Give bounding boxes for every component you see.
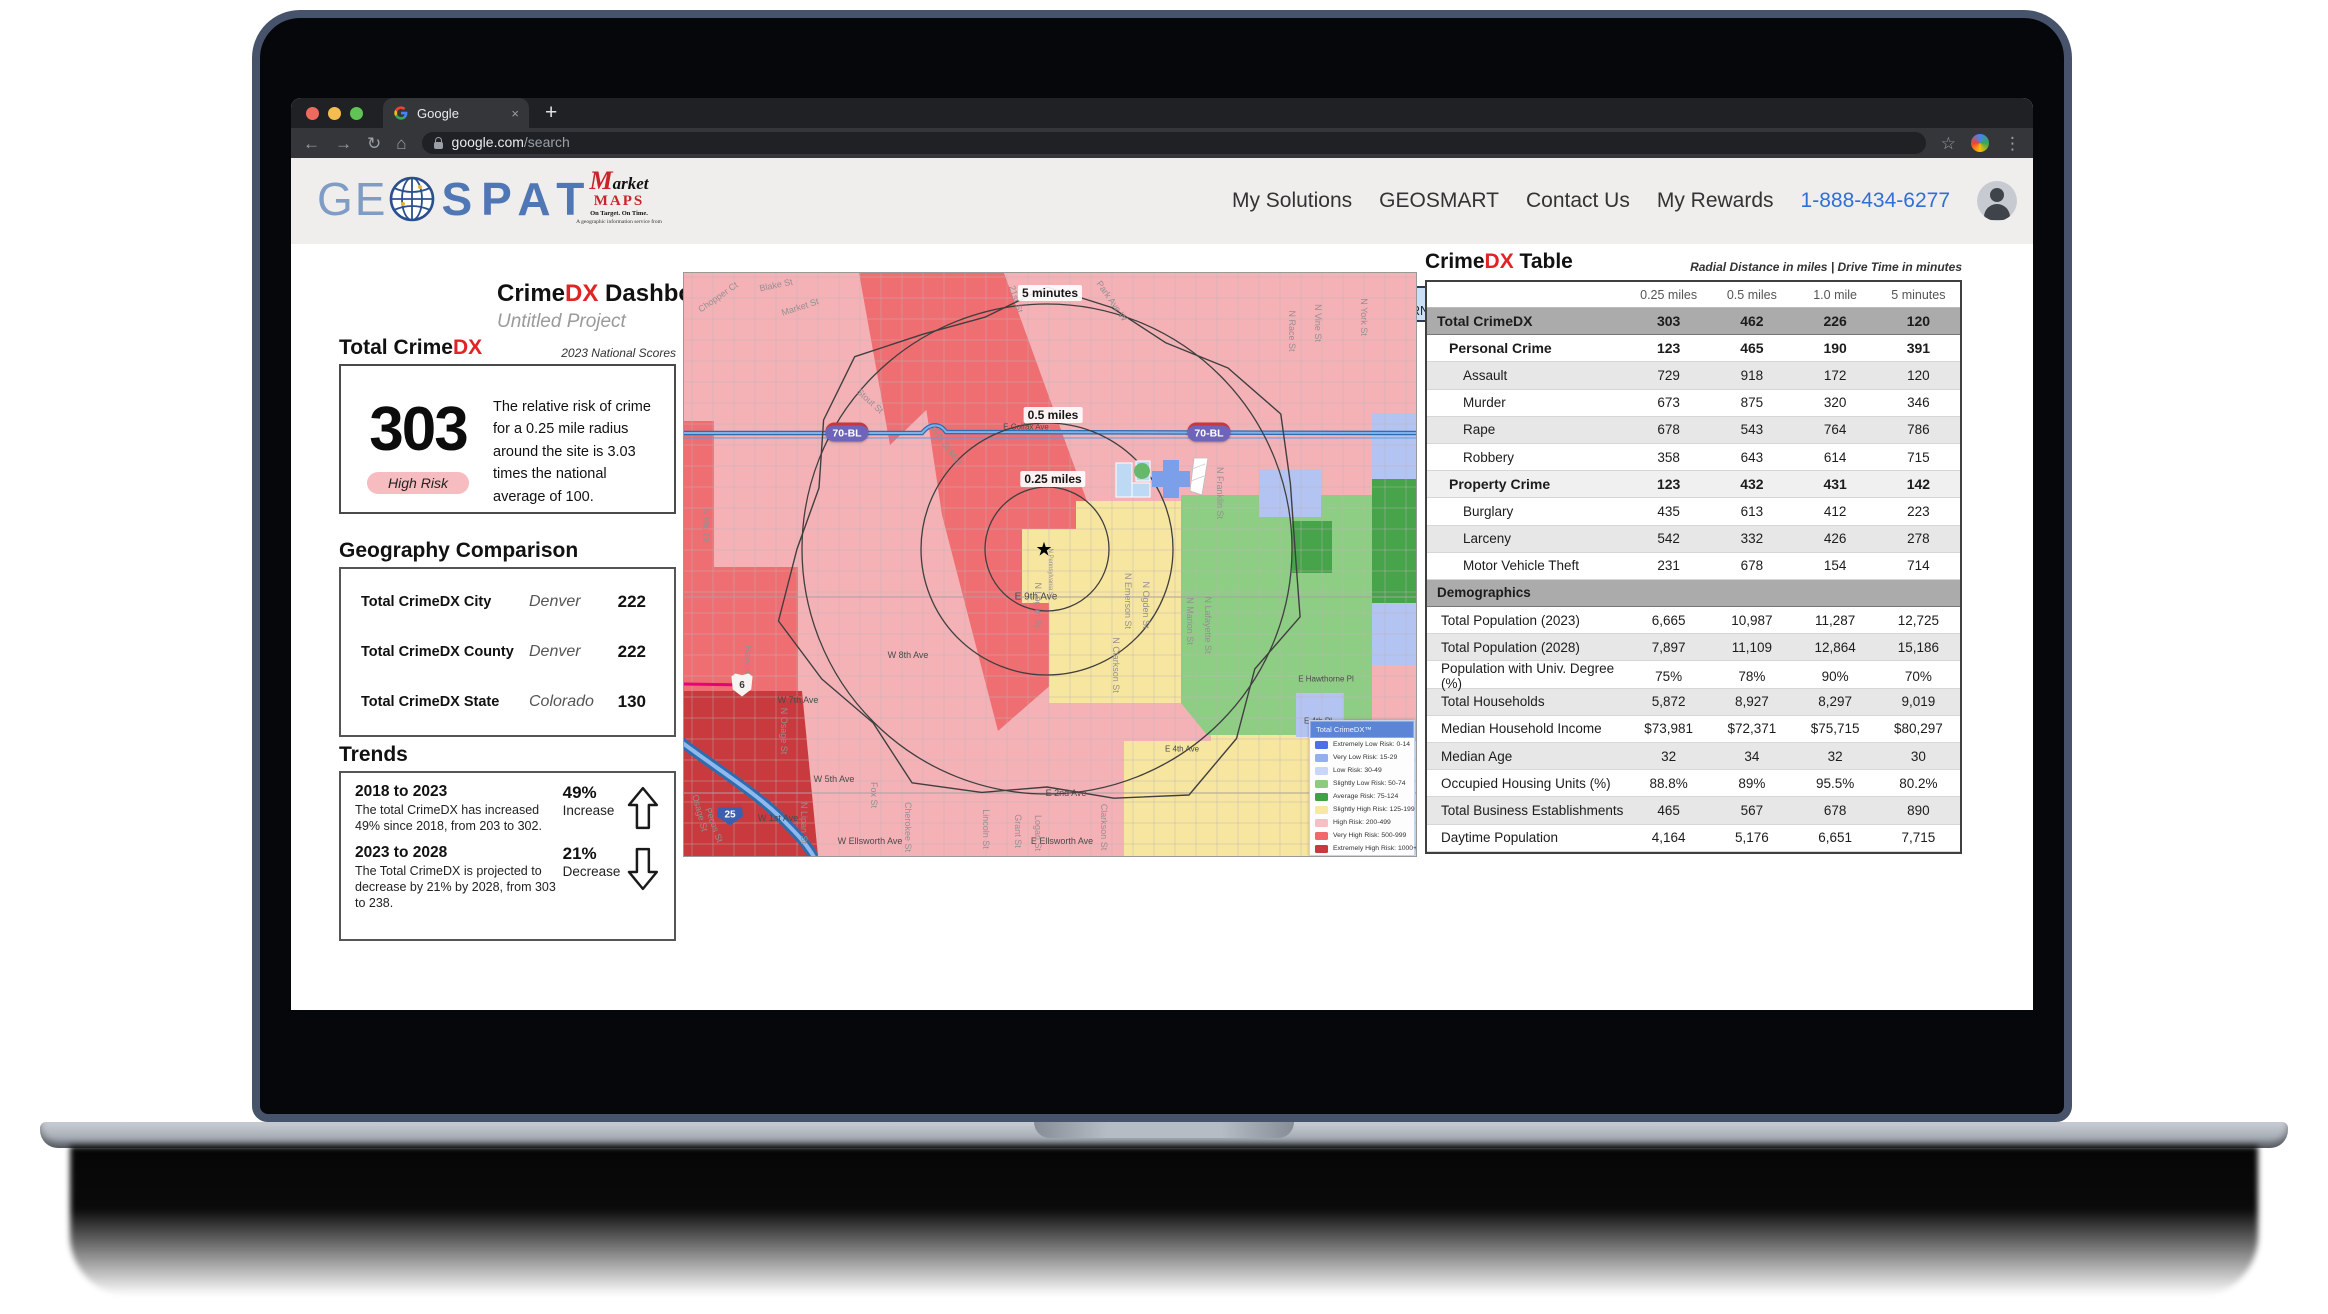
row-value: 432 (1710, 476, 1793, 492)
row-label: Murder (1427, 395, 1627, 410)
legend-item: Very High Risk: 500-999 (1310, 829, 1414, 842)
legend-item: Slightly Low Risk: 50-74 (1310, 777, 1414, 790)
row-value: 12,725 (1877, 613, 1960, 628)
geography-box: Total CrimeDX City Denver 222 Total Crim… (339, 567, 676, 737)
row-value: 123 (1627, 476, 1710, 492)
reload-icon[interactable]: ↻ (367, 135, 381, 152)
home-icon[interactable]: ⌂ (396, 135, 406, 152)
window-controls (306, 107, 363, 120)
google-favicon (393, 105, 409, 121)
row-value: 465 (1627, 803, 1710, 818)
score-panel-note: 2023 National Scores (561, 346, 676, 360)
row-label: Rape (1427, 422, 1627, 437)
new-tab-button[interactable]: + (545, 101, 557, 125)
close-window-button[interactable] (306, 107, 319, 120)
row-value: 358 (1627, 450, 1710, 465)
row-value: 465 (1710, 340, 1793, 356)
score-panel-heading: Total CrimeDX (339, 336, 482, 360)
laptop-base-notch (1034, 1122, 1294, 1138)
total-crimedx-panel: Total CrimeDX 2023 National Scores 303 H… (339, 336, 676, 514)
row-value: 32 (1627, 749, 1710, 764)
mm-subline: A geographic information service from (559, 219, 679, 225)
legend-label: Extremely High Risk: 1000+ (1333, 845, 1417, 852)
mm-maps: MAPS (559, 194, 679, 210)
mm-m: M (589, 166, 612, 195)
table-row: Demographics (1427, 580, 1960, 607)
row-value: 567 (1710, 803, 1793, 818)
table-row: Total CrimeDX303462226120 (1427, 308, 1960, 335)
row-value: 435 (1627, 504, 1710, 519)
row-value: 78% (1710, 669, 1793, 684)
row-value: 332 (1710, 531, 1793, 546)
row-value: 786 (1877, 422, 1960, 437)
geo-row-city: Total CrimeDX City Denver 222 (341, 592, 674, 612)
legend-item: High Risk: 200-499 (1310, 816, 1414, 829)
table-row: Rape678543764786 (1427, 417, 1960, 444)
row-label: Total Population (2028) (1427, 640, 1627, 655)
row-value: 11,109 (1710, 640, 1793, 655)
col-10-mile: 1.0 mile (1794, 288, 1877, 302)
legend-label: Very Low Risk: 15-29 (1333, 754, 1397, 761)
url-host: google.com (452, 134, 524, 150)
row-value: 412 (1794, 504, 1877, 519)
row-value: 715 (1877, 450, 1960, 465)
table-heading: CrimeDX Table (1425, 250, 1573, 274)
table-row: Occupied Housing Units (%)88.8%89%95.5%8… (1427, 770, 1960, 797)
nav-item-my-solutions[interactable]: My Solutions (1232, 189, 1352, 213)
row-value: 426 (1794, 531, 1877, 546)
row-value: 30 (1877, 749, 1960, 764)
table-row: Total Population (2023)6,66510,98711,287… (1427, 607, 1960, 634)
row-value: 223 (1877, 504, 1960, 519)
trend-item-2023-2028: 2023 to 2028 The Total CrimeDX is projec… (355, 844, 660, 912)
table-row: Total Population (2028)7,89711,10912,864… (1427, 634, 1960, 661)
browser-toolbar: ← → ↻ ⌂ google.com/search ☆ ⋮ (291, 128, 2033, 158)
row-value: 4,164 (1627, 830, 1710, 845)
site-header: GE SPAT Market MAPS On Target. On Time. … (291, 158, 2033, 244)
legend-swatch (1315, 819, 1328, 827)
page-content: GE SPAT Market MAPS On Target. On Time. … (291, 158, 2033, 1010)
row-value: 231 (1627, 558, 1710, 573)
legend-item: Extremely Low Risk: 0-14 (1310, 738, 1414, 751)
legend-swatch (1315, 780, 1328, 788)
legend-label: Slightly High Risk: 125-199 (1333, 806, 1415, 813)
legend-label: Very High Risk: 500-999 (1333, 832, 1406, 839)
table-row: Assault729918172120 (1427, 362, 1960, 389)
back-icon[interactable]: ← (303, 135, 320, 152)
row-value: 764 (1794, 422, 1877, 437)
col-5-minutes: 5 minutes (1877, 288, 1960, 302)
row-value: 11,287 (1794, 613, 1877, 628)
legend-rows: Extremely Low Risk: 0-14Very Low Risk: 1… (1310, 738, 1414, 855)
mm-arket: arket (613, 174, 649, 193)
row-label: Demographics (1427, 585, 1627, 600)
geospat-logo[interactable]: GE SPAT (317, 172, 593, 226)
table-row: Median Age32343230 (1427, 743, 1960, 770)
row-value: 90% (1794, 669, 1877, 684)
row-value: 75% (1627, 669, 1710, 684)
row-value: $75,715 (1794, 721, 1877, 736)
row-value: $72,371 (1710, 721, 1793, 736)
minimize-window-button[interactable] (328, 107, 341, 120)
row-value: 542 (1627, 531, 1710, 546)
row-label: Daytime Population (1427, 830, 1627, 845)
table-row: Personal Crime123465190391 (1427, 335, 1960, 362)
trends-box: 2018 to 2023 The total CrimeDX has incre… (339, 771, 676, 941)
row-value: 462 (1710, 313, 1793, 329)
row-value: 391 (1877, 340, 1960, 356)
row-value: 678 (1710, 558, 1793, 573)
row-value: 614 (1794, 450, 1877, 465)
browser-tab-bar: Google × + (291, 98, 2033, 128)
legend-swatch (1315, 793, 1328, 801)
legend-item: Slightly High Risk: 125-199 (1310, 803, 1414, 816)
row-value: 5,176 (1710, 830, 1793, 845)
col-05-miles: 0.5 miles (1710, 288, 1793, 302)
row-value: 95.5% (1794, 776, 1877, 791)
arrow-up-icon (626, 785, 660, 831)
row-value: $73,981 (1627, 721, 1710, 736)
row-value: 875 (1710, 395, 1793, 410)
geo-row-state: Total CrimeDX State Colorado 130 (341, 692, 674, 712)
table-row: Median Household Income$73,981$72,371$75… (1427, 716, 1960, 743)
legend-item: Low Risk: 30-49 (1310, 764, 1414, 777)
row-value: 678 (1627, 422, 1710, 437)
row-label: Occupied Housing Units (%) (1427, 776, 1627, 791)
row-value: $80,297 (1877, 721, 1960, 736)
row-value: 543 (1710, 422, 1793, 437)
logo-ge: GE (317, 172, 387, 226)
row-label: Personal Crime (1427, 340, 1627, 356)
crimedx-table-body: Total CrimeDX303462226120Personal Crime1… (1427, 308, 1960, 852)
table-row: Robbery358643614715 (1427, 444, 1960, 471)
row-value: 678 (1794, 803, 1877, 818)
legend-swatch (1315, 832, 1328, 840)
table-row: Total Households5,8728,9278,2979,019 (1427, 689, 1960, 716)
row-value: 431 (1794, 476, 1877, 492)
table-row: Property Crime123432431142 (1427, 471, 1960, 498)
score-description: The relative risk of crime for a 0.25 mi… (493, 396, 663, 508)
maximize-window-button[interactable] (350, 107, 363, 120)
crimedx-table-panel: CrimeDX Table Radial Distance in miles |… (1425, 250, 1962, 854)
browser-window: Google × + ← → ↻ ⌂ google.com/search ☆ ⋮… (291, 98, 2033, 1010)
user-avatar[interactable] (1977, 181, 2017, 221)
row-value: 32 (1794, 749, 1877, 764)
legend-label: Average Risk: 75-124 (1333, 793, 1398, 800)
risk-badge: High Risk (367, 472, 469, 494)
row-label: Burglary (1427, 504, 1627, 519)
forward-icon[interactable]: → (335, 135, 352, 152)
row-value: 303 (1627, 313, 1710, 329)
row-value: 154 (1794, 558, 1877, 573)
row-value: 7,715 (1877, 830, 1960, 845)
url-path: /search (524, 134, 570, 150)
browser-tab[interactable]: Google × (383, 98, 529, 128)
row-value: 10,987 (1710, 613, 1793, 628)
site-marker-star-icon: ★ (1035, 539, 1052, 562)
profile-avatar-icon[interactable] (1971, 134, 1989, 152)
arrow-down-icon (626, 846, 660, 892)
row-value: 142 (1877, 476, 1960, 492)
legend-item: Average Risk: 75-124 (1310, 790, 1414, 803)
row-label: Property Crime (1427, 476, 1627, 492)
legend-label: Low Risk: 30-49 (1333, 767, 1382, 774)
nav-item-my-rewards[interactable]: My Rewards (1657, 189, 1774, 213)
row-value: 80.2% (1877, 776, 1960, 791)
legend-swatch (1315, 767, 1328, 775)
map-legend: Total CrimeDX™ Extremely Low Risk: 0-14V… (1309, 720, 1415, 856)
row-value: 120 (1877, 313, 1960, 329)
legend-item: Extremely High Risk: 1000+ (1310, 842, 1414, 855)
row-value: 714 (1877, 558, 1960, 573)
trends-heading: Trends (339, 743, 676, 767)
row-value: 613 (1710, 504, 1793, 519)
row-value: 9,019 (1877, 694, 1960, 709)
row-value: 5,872 (1627, 694, 1710, 709)
row-value: 8,927 (1710, 694, 1793, 709)
map-canvas (684, 273, 1416, 856)
laptop-shadow (70, 1146, 2258, 1296)
legend-label: Slightly Low Risk: 50-74 (1333, 780, 1406, 787)
geography-comparison-panel: Geography Comparison Total CrimeDX City … (339, 539, 676, 737)
row-value: 6,651 (1794, 830, 1877, 845)
geography-heading: Geography Comparison (339, 539, 676, 563)
legend-item: Very Low Risk: 15-29 (1310, 751, 1414, 764)
legend-swatch (1315, 845, 1328, 853)
globe-icon (387, 174, 437, 224)
row-value: 15,186 (1877, 640, 1960, 655)
row-label: Median Age (1427, 749, 1627, 764)
row-value: 673 (1627, 395, 1710, 410)
legend-swatch (1315, 754, 1328, 762)
row-label: Total Business Establishments (1427, 803, 1627, 818)
row-value: 172 (1794, 368, 1877, 383)
row-value: 34 (1710, 749, 1793, 764)
row-label: Assault (1427, 368, 1627, 383)
table-row: Daytime Population4,1645,1766,6517,715 (1427, 825, 1960, 852)
geo-row-county: Total CrimeDX County Denver 222 (341, 642, 674, 662)
row-value: 226 (1794, 313, 1877, 329)
row-value: 12,864 (1794, 640, 1877, 655)
main-nav: My Solutions GEOSMART Contact Us My Rewa… (1232, 158, 2017, 244)
trends-panel: Trends 2018 to 2023 The total CrimeDX ha… (339, 743, 676, 941)
legend-swatch (1315, 741, 1328, 749)
crime-map[interactable]: Chopper CtBlake StMarket StStout St16th … (683, 272, 1417, 857)
table-row: Population with Univ. Degree (%)75%78%90… (1427, 661, 1960, 688)
table-note: Radial Distance in miles | Drive Time in… (1690, 260, 1962, 274)
table-row: Murder673875320346 (1427, 390, 1960, 417)
row-value: 123 (1627, 340, 1710, 356)
row-value: 190 (1794, 340, 1877, 356)
row-value: 89% (1710, 776, 1793, 791)
legend-label: Extremely Low Risk: 0-14 (1333, 741, 1410, 748)
nav-item-geosmart[interactable]: GEOSMART (1379, 189, 1499, 213)
score-box: 303 High Risk The relative risk of crime… (339, 364, 676, 514)
marketmaps-logo: Market MAPS On Target. On Time. A geogra… (559, 168, 679, 225)
row-value: 70% (1877, 669, 1960, 684)
table-row: Larceny542332426278 (1427, 526, 1960, 553)
row-label: Total CrimeDX (1427, 313, 1627, 329)
tab-close-icon[interactable]: × (511, 106, 519, 121)
legend-label: High Risk: 200-499 (1333, 819, 1391, 826)
row-value: 88.8% (1627, 776, 1710, 791)
row-value: 8,297 (1794, 694, 1877, 709)
row-value: 6,665 (1627, 613, 1710, 628)
legend-title: Total CrimeDX™ (1310, 721, 1414, 738)
row-label: Robbery (1427, 450, 1627, 465)
tab-title: Google (417, 106, 503, 121)
row-value: 7,897 (1627, 640, 1710, 655)
row-label: Population with Univ. Degree (%) (1427, 661, 1627, 691)
row-value: 729 (1627, 368, 1710, 383)
row-label: Larceny (1427, 531, 1627, 546)
row-value: 346 (1877, 395, 1960, 410)
bookmark-star-icon[interactable]: ☆ (1941, 135, 1956, 152)
row-label: Motor Vehicle Theft (1427, 558, 1627, 573)
crimedx-table: 0.25 miles 0.5 miles 1.0 mile 5 minutes … (1425, 280, 1962, 854)
lock-icon (434, 142, 443, 149)
mm-tagline: On Target. On Time. (559, 210, 679, 217)
table-row: Motor Vehicle Theft231678154714 (1427, 553, 1960, 580)
address-bar[interactable]: google.com/search (422, 132, 1926, 154)
row-label: Median Household Income (1427, 721, 1627, 736)
row-value: 643 (1710, 450, 1793, 465)
row-value: 278 (1877, 531, 1960, 546)
table-column-headers: 0.25 miles 0.5 miles 1.0 mile 5 minutes (1427, 282, 1960, 308)
row-label: Total Households (1427, 694, 1627, 709)
table-row: Burglary435613412223 (1427, 498, 1960, 525)
row-label: Total Population (2023) (1427, 613, 1627, 628)
col-025-miles: 0.25 miles (1627, 288, 1710, 302)
row-value: 918 (1710, 368, 1793, 383)
row-value: 890 (1877, 803, 1960, 818)
nav-item-contact-us[interactable]: Contact Us (1526, 189, 1630, 213)
nav-phone[interactable]: 1-888-434-6277 (1801, 189, 1950, 213)
row-value: 120 (1877, 368, 1960, 383)
table-row: Total Business Establishments46556767889… (1427, 797, 1960, 824)
trend-item-2018-2023: 2018 to 2023 The total CrimeDX has incre… (355, 783, 660, 835)
legend-swatch (1315, 806, 1328, 814)
crimedx-score: 303 (359, 394, 477, 465)
menu-kebab-icon[interactable]: ⋮ (2004, 135, 2021, 152)
row-value: 320 (1794, 395, 1877, 410)
